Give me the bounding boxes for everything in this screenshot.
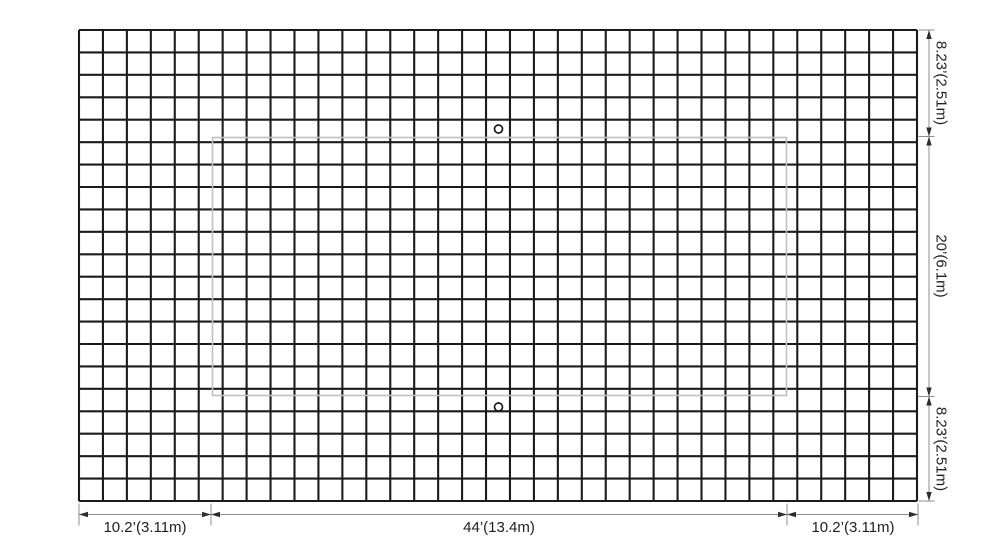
net-grid	[79, 30, 917, 501]
grommet-top	[495, 125, 503, 133]
dim-label-top-height: 8.23’(2.51m)	[934, 41, 949, 125]
dim-label-right-width: 10.2’(3.11m)	[811, 520, 894, 535]
grommet-bottom	[495, 403, 503, 411]
net-dimension-diagram: 8.23’(2.51m) 20’(6.1m) 8.23’(2.51m) 10.2…	[0, 0, 1000, 560]
dim-label-middle-height: 20’(6.1m)	[934, 234, 949, 297]
panel-outline	[213, 138, 787, 396]
dim-label-bottom-height: 8.23’(2.51m)	[934, 407, 949, 491]
net-drawing	[0, 0, 1000, 560]
dim-label-center-width: 44’(13.4m)	[463, 520, 535, 535]
dim-label-left-width: 10.2’(3.11m)	[103, 520, 186, 535]
